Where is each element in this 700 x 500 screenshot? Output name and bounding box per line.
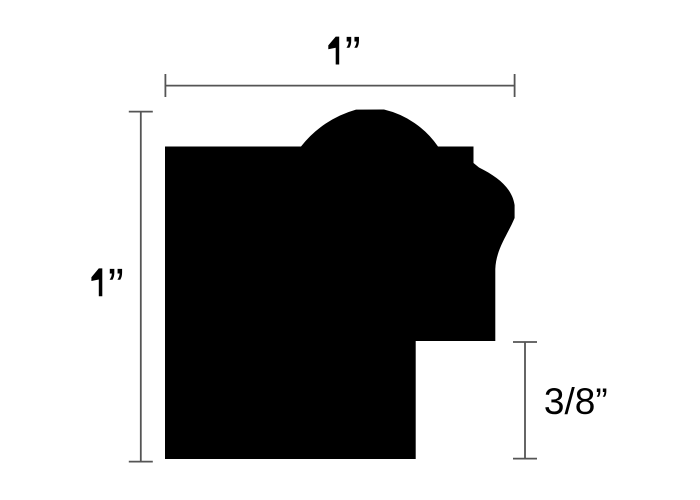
svg-text:3/8”: 3/8”: [544, 381, 608, 422]
svg-text:”: ”: [345, 28, 361, 81]
svg-text:”: ”: [108, 260, 124, 313]
